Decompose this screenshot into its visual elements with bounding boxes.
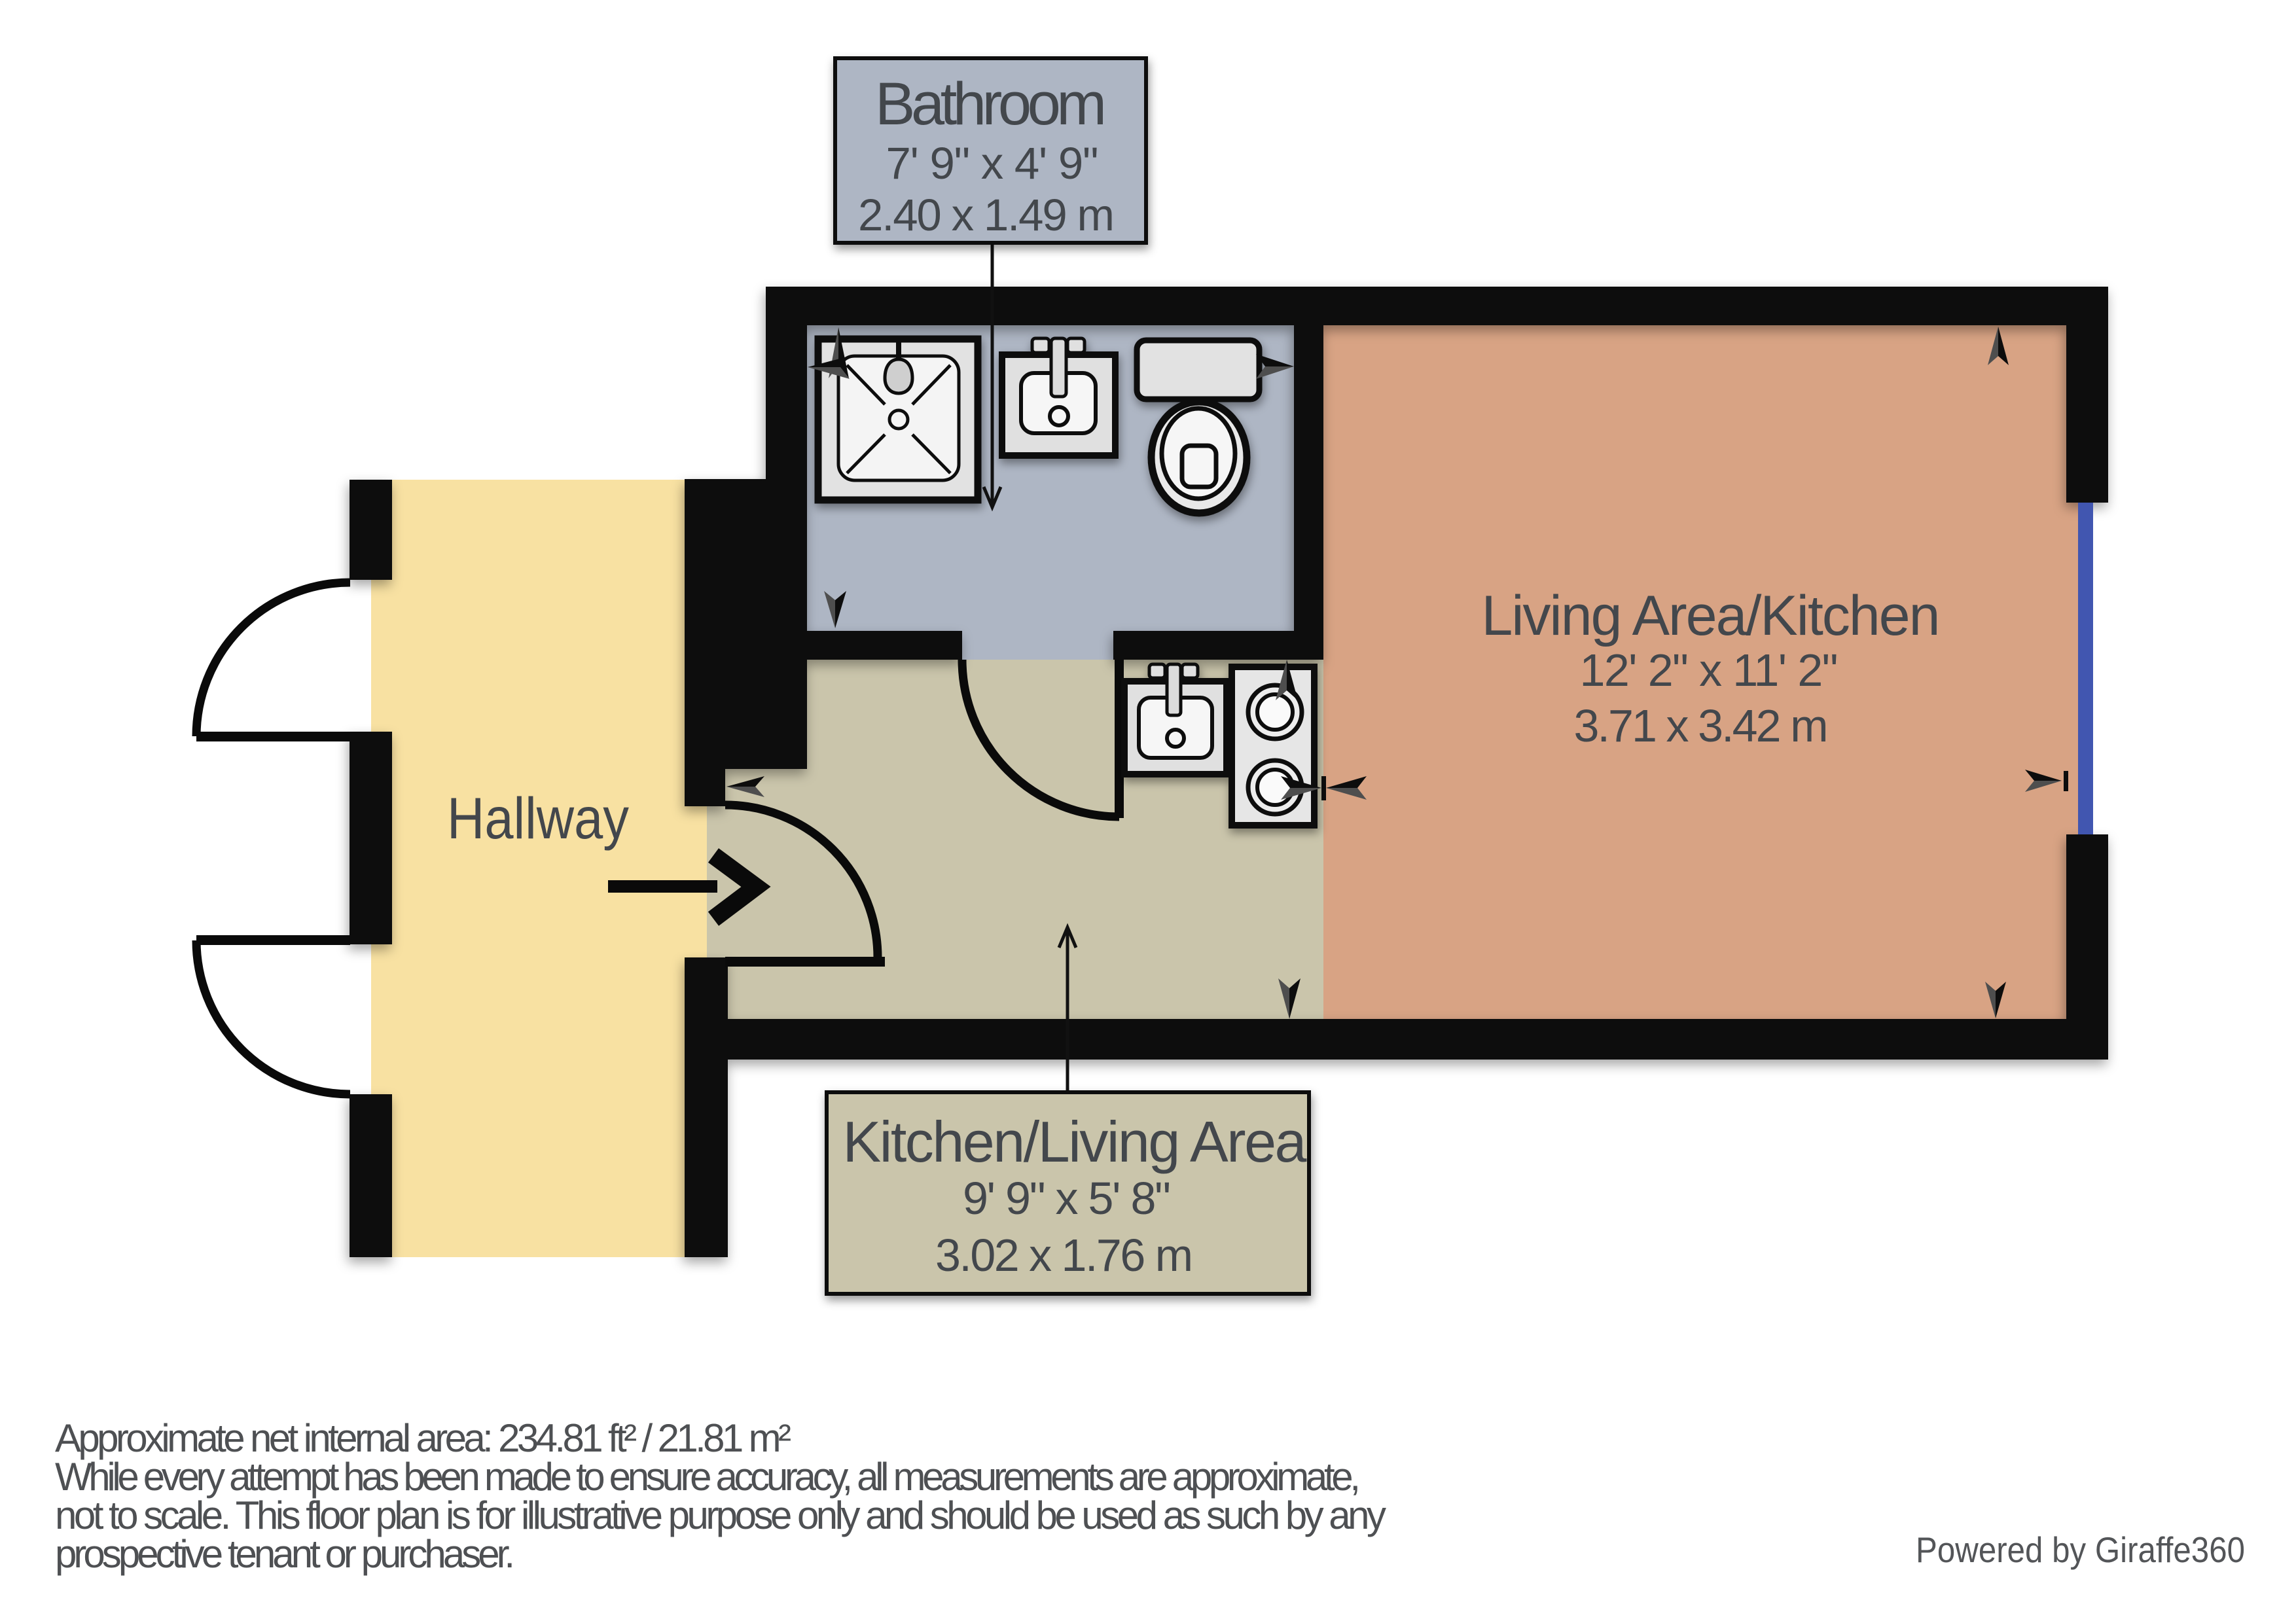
svg-text:Kitchen/Living Area: Kitchen/Living Area (843, 1109, 1307, 1174)
svg-text:9' 9" x 5' 8": 9' 9" x 5' 8" (963, 1173, 1171, 1224)
svg-text:Approximate net internal area:: Approximate net internal area: 234.81 ft… (55, 1416, 791, 1460)
svg-text:prospective tenant or purchase: prospective tenant or purchaser. (55, 1532, 515, 1576)
svg-text:not to scale. This floor plan: not to scale. This floor plan is for ill… (55, 1493, 1386, 1537)
svg-text:12' 2" x 11' 2": 12' 2" x 11' 2" (1580, 645, 1839, 696)
svg-text:3.02 x 1.76 m: 3.02 x 1.76 m (935, 1230, 1193, 1281)
svg-text:7' 9" x 4' 9": 7' 9" x 4' 9" (886, 138, 1099, 188)
svg-text:While every attempt has been m: While every attempt has been made to ens… (55, 1455, 1361, 1499)
svg-text:Living Area/Kitchen: Living Area/Kitchen (1482, 584, 1941, 647)
svg-text:Bathroom: Bathroom (875, 71, 1107, 137)
svg-text:2.40 x 1.49 m: 2.40 x 1.49 m (858, 190, 1115, 240)
svg-text:Powered by Giraffe360: Powered by Giraffe360 (1916, 1529, 2245, 1570)
svg-text:3.71 x 3.42 m: 3.71 x 3.42 m (1574, 700, 1829, 751)
svg-text:Hallway: Hallway (447, 785, 629, 851)
